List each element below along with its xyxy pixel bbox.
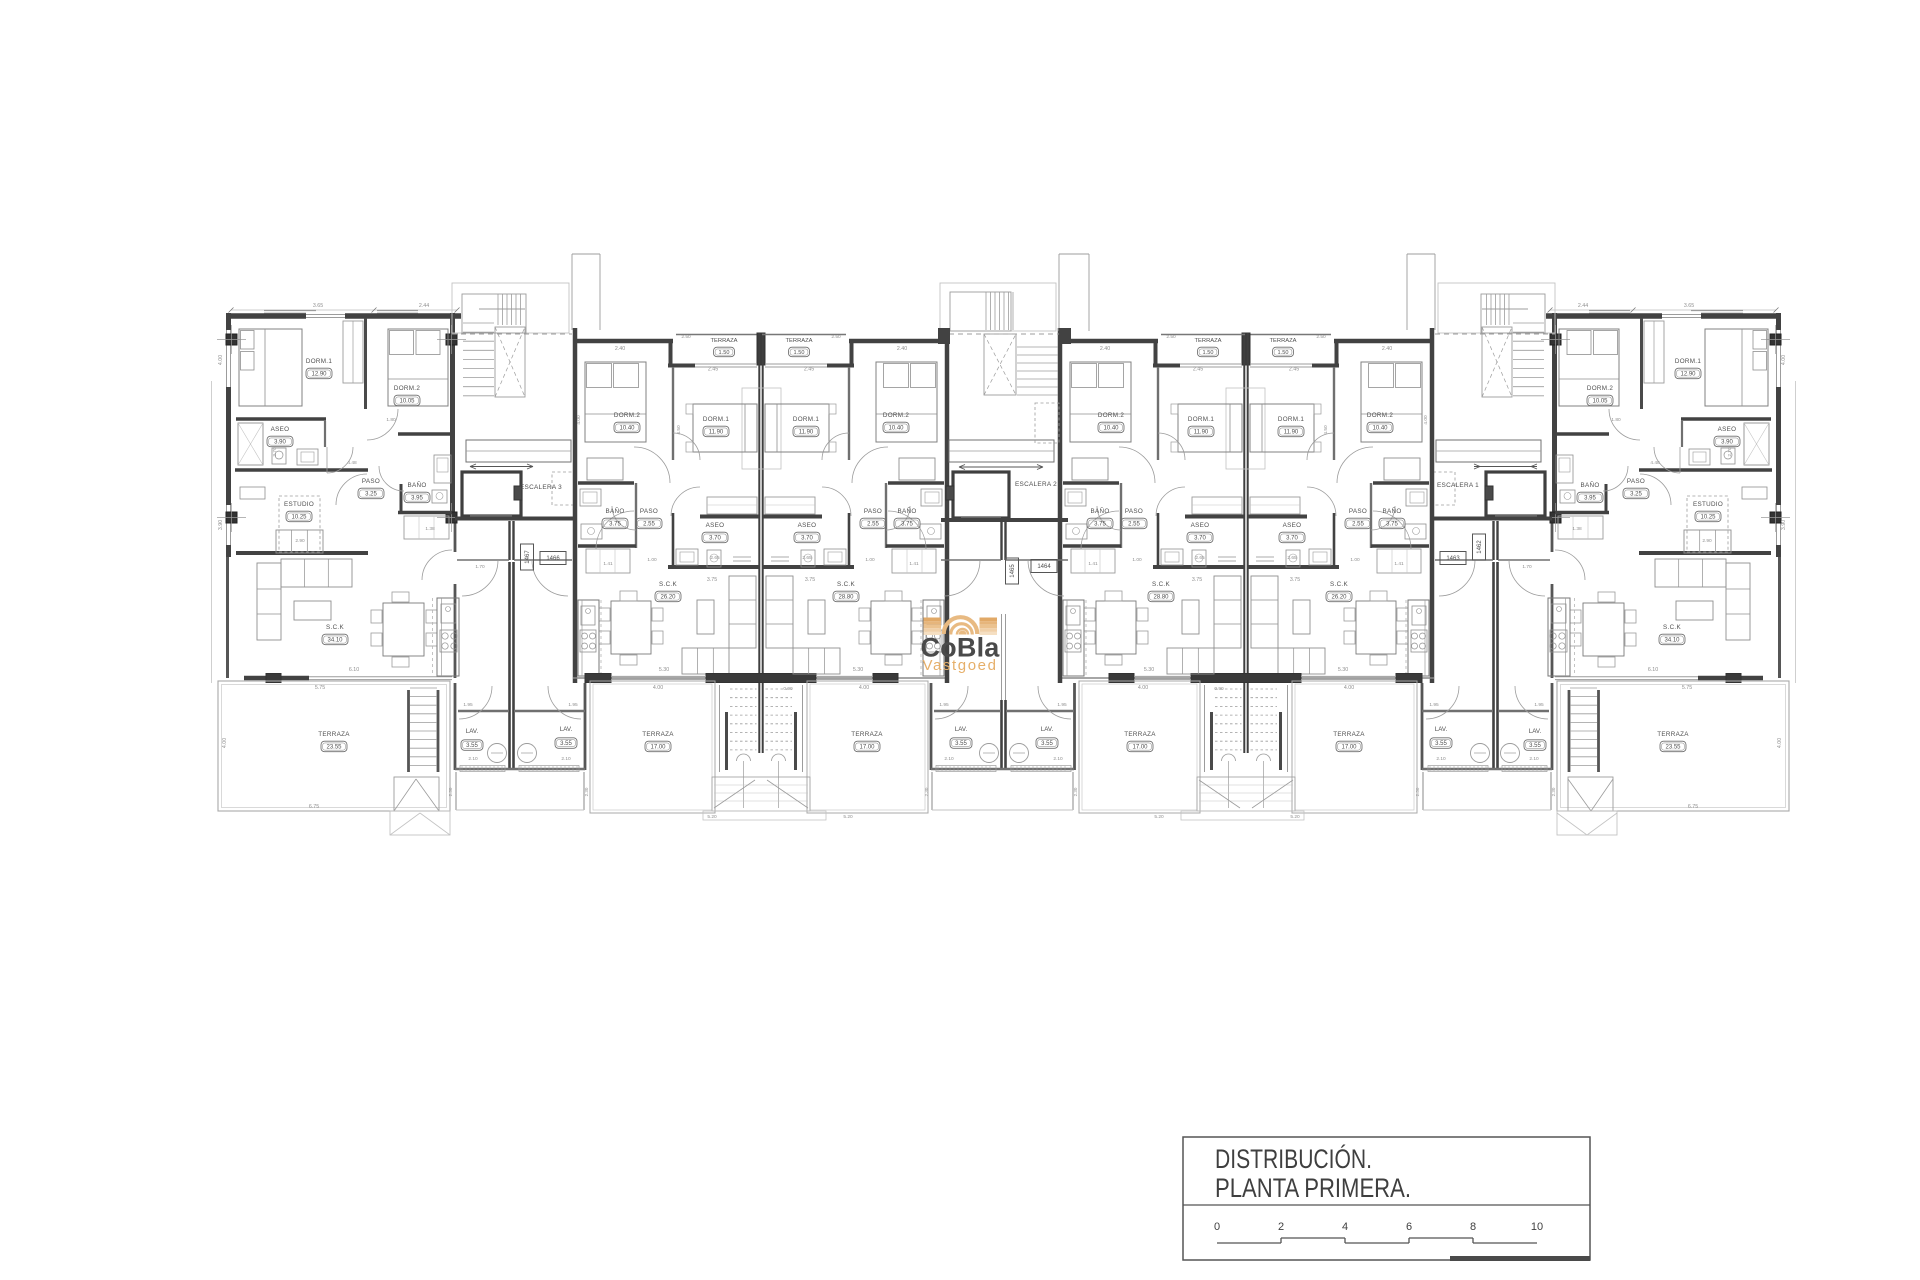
svg-text:10.40: 10.40 <box>1103 426 1119 432</box>
svg-text:S.C.K: S.C.K <box>1663 624 1681 631</box>
svg-text:ASEO: ASEO <box>1191 522 1210 529</box>
svg-text:2.50: 2.50 <box>1316 334 1326 340</box>
svg-text:2.65: 2.65 <box>1195 555 1205 561</box>
svg-text:3.55: 3.55 <box>1041 741 1053 747</box>
svg-text:BAÑO: BAÑO <box>1580 480 1599 489</box>
svg-text:1462: 1462 <box>1477 540 1483 554</box>
svg-text:5.20: 5.20 <box>843 814 853 820</box>
svg-text:S.C.K: S.C.K <box>1330 581 1348 588</box>
svg-text:1.95: 1.95 <box>463 702 473 708</box>
svg-text:23.55: 23.55 <box>1665 745 1681 751</box>
svg-text:1.50: 1.50 <box>1278 350 1289 356</box>
svg-text:2.65: 2.65 <box>710 555 720 561</box>
svg-text:DORM.1: DORM.1 <box>793 416 819 423</box>
svg-text:4.00: 4.00 <box>1777 738 1783 748</box>
svg-text:1.50: 1.50 <box>1203 350 1214 356</box>
svg-text:2.30: 2.30 <box>1073 787 1078 796</box>
svg-text:1.50: 1.50 <box>794 350 805 356</box>
svg-text:3.65: 3.65 <box>1684 303 1694 309</box>
svg-text:3.90: 3.90 <box>1781 520 1787 530</box>
svg-text:TERRAZA: TERRAZA <box>1194 338 1221 344</box>
svg-text:TERRAZA: TERRAZA <box>1333 731 1365 738</box>
svg-text:11.90: 11.90 <box>799 430 814 436</box>
svg-text:1.70: 1.70 <box>475 564 485 570</box>
svg-text:10.25: 10.25 <box>291 515 307 521</box>
svg-text:5.30: 5.30 <box>1144 667 1154 673</box>
svg-text:10.05: 10.05 <box>1592 399 1608 405</box>
svg-text:8: 8 <box>1470 1221 1476 1233</box>
svg-text:2.30: 2.30 <box>924 787 929 796</box>
svg-text:3.90: 3.90 <box>218 520 224 530</box>
svg-text:11.90: 11.90 <box>709 430 724 436</box>
svg-text:2.45: 2.45 <box>804 367 814 373</box>
svg-text:4: 4 <box>1342 1221 1348 1233</box>
svg-text:3.55: 3.55 <box>560 741 572 747</box>
svg-text:BAÑO: BAÑO <box>1090 506 1109 515</box>
svg-text:2.10: 2.10 <box>944 756 954 762</box>
svg-text:DORM.1: DORM.1 <box>703 416 729 423</box>
svg-text:S.C.K: S.C.K <box>326 624 344 631</box>
svg-text:4.00: 4.00 <box>1344 685 1354 691</box>
svg-text:2.70: 2.70 <box>1727 447 1733 457</box>
svg-text:2.40: 2.40 <box>1382 346 1392 352</box>
svg-text:LAV.: LAV. <box>560 726 573 733</box>
svg-text:4.00: 4.00 <box>1781 355 1787 365</box>
svg-text:6.10: 6.10 <box>1648 667 1658 673</box>
svg-text:17.00: 17.00 <box>650 745 666 751</box>
svg-text:DORM.2: DORM.2 <box>1367 412 1393 419</box>
svg-text:2.30: 2.30 <box>448 787 453 796</box>
svg-text:LAV.: LAV. <box>1435 726 1448 733</box>
svg-text:DORM.1: DORM.1 <box>1188 416 1214 423</box>
svg-text:4.48: 4.48 <box>347 460 357 466</box>
svg-text:4.00: 4.00 <box>859 685 869 691</box>
svg-text:TERRAZA: TERRAZA <box>1657 731 1689 738</box>
svg-text:LAV.: LAV. <box>1041 726 1054 733</box>
svg-text:5.20: 5.20 <box>1154 814 1164 820</box>
svg-text:3.25: 3.25 <box>365 492 377 498</box>
svg-text:6.75: 6.75 <box>1688 804 1698 810</box>
svg-text:PASO: PASO <box>1125 508 1143 515</box>
svg-text:4.00: 4.00 <box>1138 685 1148 691</box>
svg-text:12.90: 12.90 <box>311 372 327 378</box>
svg-text:1.80: 1.80 <box>386 417 396 423</box>
svg-text:PASO: PASO <box>362 478 380 485</box>
svg-text:1.80: 1.80 <box>1611 417 1621 423</box>
svg-text:2.50: 2.50 <box>1166 334 1176 340</box>
svg-text:12.90: 12.90 <box>1680 372 1696 378</box>
svg-text:2.50: 2.50 <box>831 334 841 340</box>
svg-text:2.65: 2.65 <box>802 555 812 561</box>
svg-text:ESTUDIO: ESTUDIO <box>284 501 314 508</box>
svg-text:3.95: 3.95 <box>411 496 423 502</box>
svg-text:5.75: 5.75 <box>315 685 325 691</box>
svg-text:1.95: 1.95 <box>1057 702 1067 708</box>
svg-text:2.55: 2.55 <box>1352 522 1364 528</box>
svg-text:1.38: 1.38 <box>425 526 435 532</box>
svg-text:ASEO: ASEO <box>271 426 290 433</box>
svg-text:10.40: 10.40 <box>1372 426 1388 432</box>
svg-text:3.90: 3.90 <box>1721 440 1733 446</box>
svg-text:4.00: 4.00 <box>222 738 228 748</box>
svg-text:26.20: 26.20 <box>660 595 676 601</box>
svg-text:3.75: 3.75 <box>1192 577 1202 583</box>
svg-text:3.70: 3.70 <box>1286 536 1298 542</box>
svg-text:3.25: 3.25 <box>1630 492 1642 498</box>
svg-text:2.55: 2.55 <box>643 522 655 528</box>
svg-text:34.10: 34.10 <box>327 638 343 644</box>
svg-text:28.80: 28.80 <box>1153 595 1169 601</box>
svg-text:1.41: 1.41 <box>603 561 613 567</box>
svg-text:0: 0 <box>1214 1221 1220 1233</box>
svg-text:28.80: 28.80 <box>838 595 854 601</box>
svg-text:1.95: 1.95 <box>1429 702 1439 708</box>
svg-text:1.70: 1.70 <box>1522 564 1532 570</box>
svg-text:5.75: 5.75 <box>1682 685 1692 691</box>
svg-text:3.75: 3.75 <box>901 522 913 528</box>
svg-text:1.41: 1.41 <box>1394 561 1404 567</box>
svg-text:ESCALERA 2: ESCALERA 2 <box>1015 481 1057 488</box>
svg-text:ASEO: ASEO <box>706 522 725 529</box>
svg-text:1.00: 1.00 <box>647 557 657 563</box>
svg-text:17.00: 17.00 <box>1132 745 1148 751</box>
svg-text:3.70: 3.70 <box>1194 536 1206 542</box>
svg-text:4.00: 4.00 <box>1423 415 1429 425</box>
svg-text:3.55: 3.55 <box>1435 741 1447 747</box>
svg-text:2.45: 2.45 <box>708 367 718 373</box>
svg-text:2.90: 2.90 <box>1702 538 1712 544</box>
svg-text:2.10: 2.10 <box>468 756 478 762</box>
svg-text:ESCALERA 3: ESCALERA 3 <box>520 484 562 491</box>
svg-text:2.90: 2.90 <box>295 538 305 544</box>
svg-text:2: 2 <box>1278 1221 1284 1233</box>
svg-text:PASO: PASO <box>1349 508 1367 515</box>
svg-text:TERRAZA: TERRAZA <box>642 731 674 738</box>
svg-text:DISTRIBUCIÓN.: DISTRIBUCIÓN. <box>1215 1143 1372 1174</box>
svg-text:17.00: 17.00 <box>859 745 875 751</box>
svg-text:4.48: 4.48 <box>1650 460 1660 466</box>
svg-text:DORM.1: DORM.1 <box>1278 416 1304 423</box>
svg-text:2.45: 2.45 <box>1193 367 1203 373</box>
svg-text:3.75: 3.75 <box>1386 522 1398 528</box>
svg-text:TERRAZA: TERRAZA <box>851 731 883 738</box>
svg-text:PASO: PASO <box>864 508 882 515</box>
svg-text:LAV.: LAV. <box>955 726 968 733</box>
svg-text:23.55: 23.55 <box>326 745 342 751</box>
svg-text:4.00: 4.00 <box>576 415 582 425</box>
svg-text:DORM.2: DORM.2 <box>394 385 420 392</box>
svg-text:S.C.K: S.C.K <box>1152 581 1170 588</box>
svg-text:3.75: 3.75 <box>1094 522 1106 528</box>
svg-text:PASO: PASO <box>640 508 658 515</box>
svg-text:1466: 1466 <box>546 556 560 562</box>
svg-text:TERRAZA: TERRAZA <box>1269 338 1296 344</box>
svg-text:2.65: 2.65 <box>1287 555 1297 561</box>
svg-text:4.00: 4.00 <box>218 355 224 365</box>
svg-text:1.95: 1.95 <box>1534 702 1544 708</box>
svg-text:2.30: 2.30 <box>584 787 589 796</box>
svg-text:2.44: 2.44 <box>1578 303 1588 309</box>
svg-text:1467: 1467 <box>525 550 531 564</box>
svg-text:TERRAZA: TERRAZA <box>710 338 737 344</box>
svg-text:ASEO: ASEO <box>798 522 817 529</box>
svg-text:2.10: 2.10 <box>1436 756 1446 762</box>
svg-text:10.25: 10.25 <box>1700 515 1716 521</box>
svg-text:LAV.: LAV. <box>1529 728 1542 735</box>
svg-text:1463: 1463 <box>1446 556 1460 562</box>
svg-text:2.45: 2.45 <box>1289 367 1299 373</box>
svg-text:1.95: 1.95 <box>939 702 949 708</box>
svg-text:6.10: 6.10 <box>349 667 359 673</box>
svg-text:3.75: 3.75 <box>609 522 621 528</box>
svg-text:1.41: 1.41 <box>909 561 919 567</box>
svg-text:5.30: 5.30 <box>853 667 863 673</box>
svg-text:S.C.K: S.C.K <box>659 581 677 588</box>
svg-text:3.70: 3.70 <box>709 536 721 542</box>
svg-text:26.20: 26.20 <box>1331 595 1347 601</box>
svg-text:5.30: 5.30 <box>1338 667 1348 673</box>
svg-text:1465: 1465 <box>1010 564 1016 578</box>
svg-text:DORM.2: DORM.2 <box>883 412 909 419</box>
svg-text:BAÑO: BAÑO <box>897 506 916 515</box>
svg-text:5.20: 5.20 <box>1290 814 1300 820</box>
svg-text:3.55: 3.55 <box>466 743 478 749</box>
svg-text:6.75: 6.75 <box>309 804 319 810</box>
svg-text:DORM.1: DORM.1 <box>306 358 332 365</box>
svg-text:ASEO: ASEO <box>1283 522 1302 529</box>
svg-text:5.20: 5.20 <box>707 814 717 820</box>
svg-text:TERRAZA: TERRAZA <box>318 731 350 738</box>
svg-text:BAÑO: BAÑO <box>605 506 624 515</box>
svg-text:3.55: 3.55 <box>1529 743 1541 749</box>
svg-text:1.00: 1.00 <box>865 557 875 563</box>
svg-text:2.40: 2.40 <box>615 346 625 352</box>
svg-text:3.75: 3.75 <box>805 577 815 583</box>
svg-text:3.75: 3.75 <box>707 577 717 583</box>
svg-text:1.00: 1.00 <box>1350 557 1360 563</box>
svg-text:2.30: 2.30 <box>1551 787 1556 796</box>
svg-text:1.38: 1.38 <box>1572 526 1582 532</box>
svg-text:6: 6 <box>1406 1221 1412 1233</box>
svg-text:3.75: 3.75 <box>1290 577 1300 583</box>
svg-text:11.90: 11.90 <box>1194 430 1209 436</box>
svg-text:BAÑO: BAÑO <box>1382 506 1401 515</box>
svg-text:17.00: 17.00 <box>1341 745 1357 751</box>
svg-text:1464: 1464 <box>1037 564 1051 570</box>
svg-text:ESTUDIO: ESTUDIO <box>1693 501 1723 508</box>
svg-text:ESCALERA 1: ESCALERA 1 <box>1437 482 1479 489</box>
svg-text:2.70: 2.70 <box>272 447 278 457</box>
svg-text:S.C.K: S.C.K <box>837 581 855 588</box>
svg-text:Vastgoed: Vastgoed <box>922 657 997 674</box>
svg-text:4.50: 4.50 <box>1323 425 1329 435</box>
svg-text:4.00: 4.00 <box>653 685 663 691</box>
svg-text:10.05: 10.05 <box>399 399 415 405</box>
svg-text:2.50: 2.50 <box>681 334 691 340</box>
svg-text:2.44: 2.44 <box>419 303 429 309</box>
svg-text:DORM.2: DORM.2 <box>1587 385 1613 392</box>
svg-text:4.50: 4.50 <box>676 425 682 435</box>
svg-text:1.95: 1.95 <box>568 702 578 708</box>
svg-text:3.90: 3.90 <box>274 440 286 446</box>
svg-text:PLANTA PRIMERA.: PLANTA PRIMERA. <box>1215 1173 1411 1203</box>
svg-text:10.40: 10.40 <box>888 426 904 432</box>
svg-text:DORM.2: DORM.2 <box>614 412 640 419</box>
svg-text:5.30: 5.30 <box>659 667 669 673</box>
svg-text:BAÑO: BAÑO <box>407 480 426 489</box>
svg-text:ASEO: ASEO <box>1718 426 1737 433</box>
svg-text:10: 10 <box>1531 1221 1543 1233</box>
svg-text:2.55: 2.55 <box>1128 522 1140 528</box>
svg-text:2.10: 2.10 <box>561 756 571 762</box>
svg-text:2.40: 2.40 <box>1100 346 1110 352</box>
svg-text:PASO: PASO <box>1627 478 1645 485</box>
svg-text:TERRAZA: TERRAZA <box>785 338 812 344</box>
svg-text:10.40: 10.40 <box>619 426 635 432</box>
svg-text:1.41: 1.41 <box>1088 561 1098 567</box>
svg-text:LAV.: LAV. <box>466 728 479 735</box>
svg-text:DORM.1: DORM.1 <box>1675 358 1701 365</box>
svg-text:2.55: 2.55 <box>867 522 879 528</box>
svg-text:2.10: 2.10 <box>1053 756 1063 762</box>
svg-text:3.65: 3.65 <box>313 303 323 309</box>
svg-text:DORM.2: DORM.2 <box>1098 412 1124 419</box>
svg-text:1.00: 1.00 <box>1132 557 1142 563</box>
svg-text:3.70: 3.70 <box>801 536 813 542</box>
svg-text:2.10: 2.10 <box>1529 756 1539 762</box>
svg-text:34.10: 34.10 <box>1664 638 1680 644</box>
svg-text:3.95: 3.95 <box>1584 496 1596 502</box>
svg-text:3.55: 3.55 <box>955 741 967 747</box>
svg-text:1.50: 1.50 <box>719 350 730 356</box>
svg-text:11.90: 11.90 <box>1284 430 1299 436</box>
svg-text:TERRAZA: TERRAZA <box>1124 731 1156 738</box>
svg-text:2.40: 2.40 <box>897 346 907 352</box>
